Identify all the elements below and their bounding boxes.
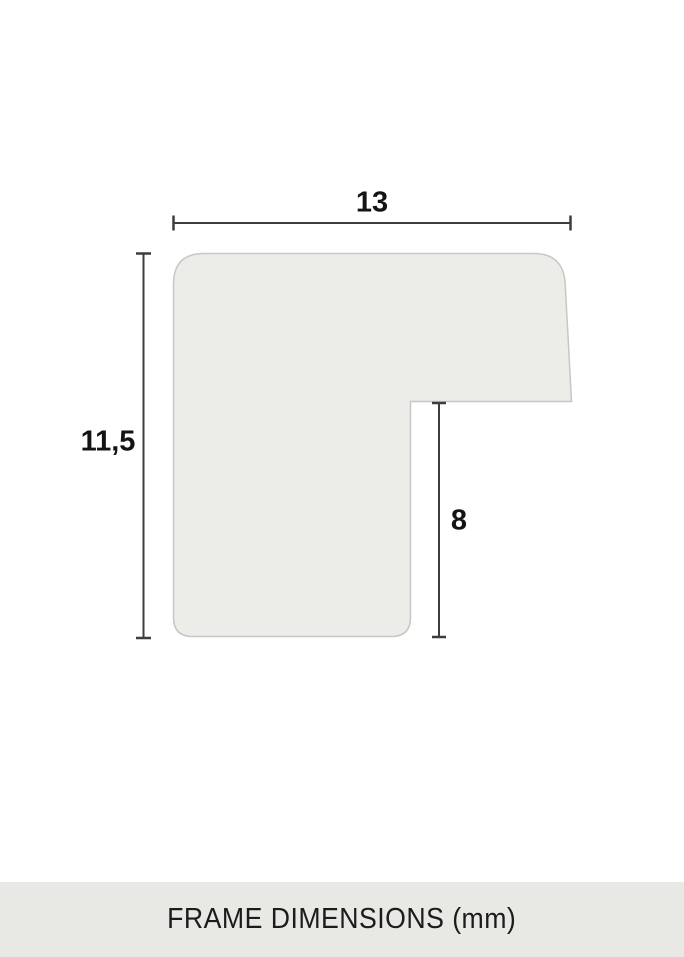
rabbet-dimension-line [432,403,446,637]
width-dimension-label: 13 [356,189,388,218]
height-dimension-label: 11,5 [81,428,136,457]
height-dimension-line [136,254,151,639]
profile-shape [174,254,572,637]
frame-profile-diagram: 13 11,5 8 FRAME DIMENSIONS (mm) [0,0,684,957]
caption-bar: FRAME DIMENSIONS (mm) [0,882,684,957]
caption-text: FRAME DIMENSIONS (mm) [167,903,516,936]
rabbet-dimension-label: 8 [451,507,467,536]
